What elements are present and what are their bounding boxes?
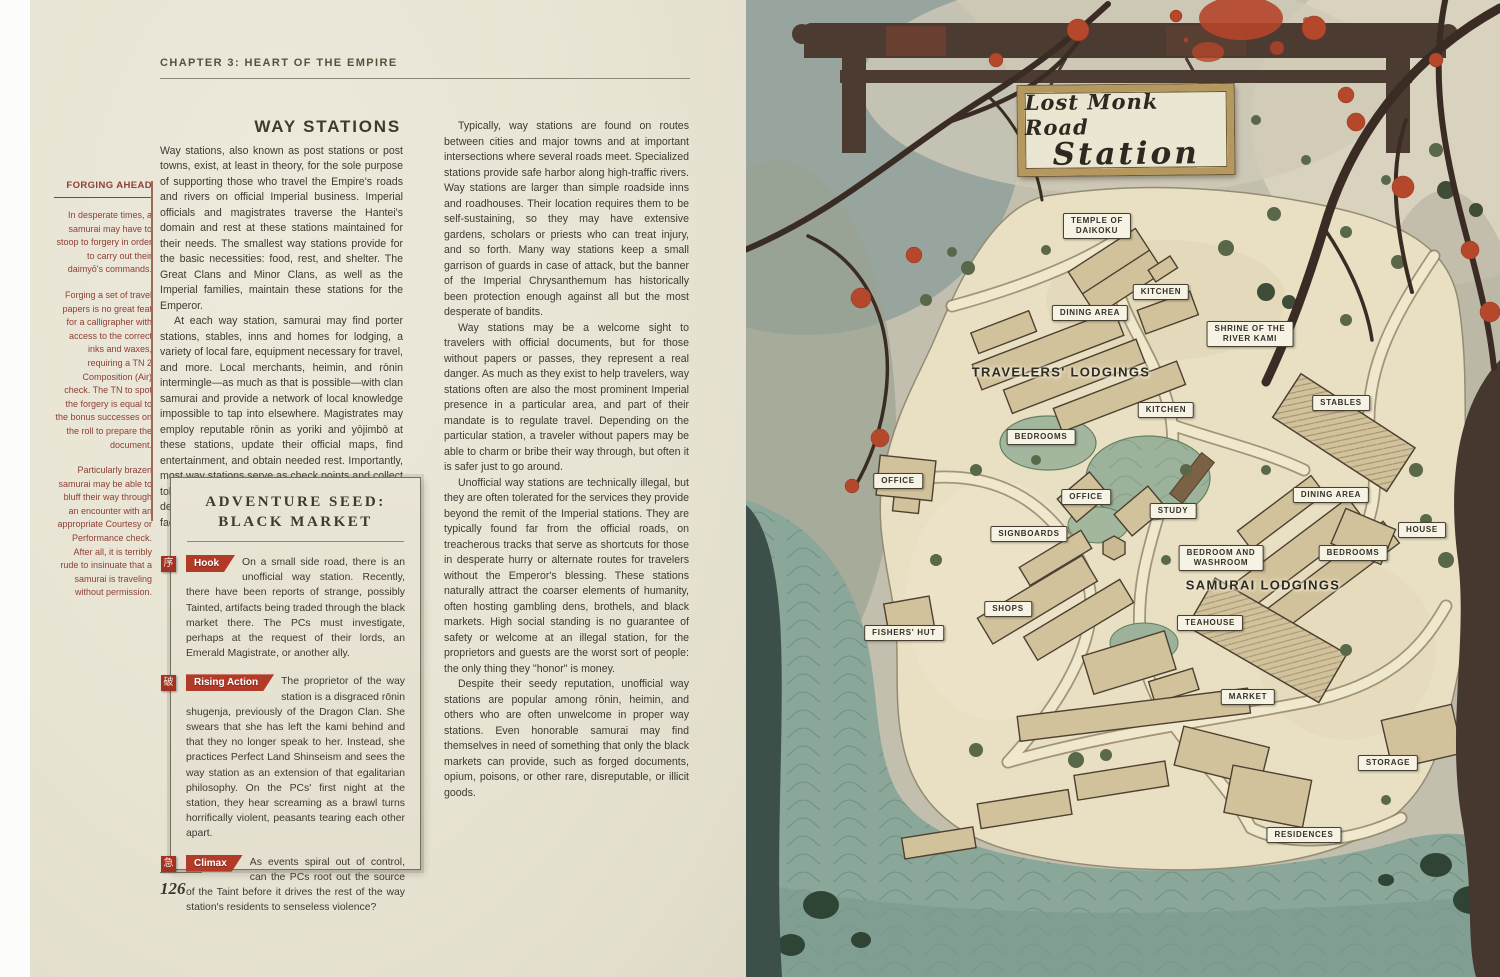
right-page-map: Lost Monk Road Station TEMPLE OF DAIKOKU… [746,0,1500,977]
map-label-dining-area: DINING AREA [1293,487,1369,503]
adventure-seed-title-line2: BLACK MARKET [186,512,405,532]
sidebar-divider-rule [151,181,153,521]
zone-label-samurai-lodgings: SAMURAI LODGINGS [1186,578,1340,593]
seed-entry-climax: 急 Climax As events spiral out of control… [186,855,405,916]
map-label-office: OFFICE [1061,489,1111,505]
page-number-rule [160,872,202,873]
map-label-shops: SHOPS [984,601,1032,617]
hook-text: On a small side road, there is an unoffi… [186,557,405,659]
page-number: 126 [160,879,186,899]
adventure-seed-title-line1: ADVENTURE SEED: [186,492,405,512]
map-label-bedrooms: BEDROOMS [1319,545,1388,561]
body-paragraph: Way stations, also known as post station… [160,144,403,315]
map-label-bedrooms: BEDROOMS [1007,429,1076,445]
map-label-signboards: SIGNBOARDS [990,526,1067,542]
rising-action-ribbon: Rising Action [186,674,274,691]
map-label-house: HOUSE [1398,522,1446,538]
rising-action-text: The proprietor of the way station is a d… [186,676,405,839]
climax-ribbon: Climax [186,855,243,872]
map-label-study: STUDY [1150,503,1197,519]
sidebar-forging-ahead: FORGING AHEAD In desperate times, a samu… [54,180,152,612]
map-label-fishers-hut: FISHERS' HUT [864,625,944,641]
adventure-seed-box: ADVENTURE SEED: BLACK MARKET 序 Hook On a… [170,477,421,870]
left-page: CHAPTER 3: HEART OF THE EMPIRE FORGING A… [30,0,746,977]
body-paragraph: Despite their seedy reputation, unoffici… [444,677,689,801]
sign-title-line1: Lost Monk Road [1025,87,1228,139]
adventure-seed-title: ADVENTURE SEED: BLACK MARKET [186,492,405,532]
sign-title-line2: Station [1052,135,1199,173]
body-paragraph: Unofficial way stations are technically … [444,476,689,678]
map-label-kitchen: KITCHEN [1133,284,1189,300]
map-label-teahouse: TEAHOUSE [1177,615,1243,631]
seed-entry-rising-action: 破 Rising Action The proprietor of the wa… [186,674,405,841]
climax-icon: 急 [161,856,176,872]
map-label-residences: RESIDENCES [1266,827,1341,843]
zone-label-travelers-lodgings: TRAVELERS' LODGINGS [972,365,1151,380]
text-column-1: WAY STATIONS Way stations, also known as… [160,119,403,531]
sidebar-paragraph: Forging a set of travel papers is no gre… [54,289,152,452]
hook-icon: 序 [161,556,176,572]
sidebar-paragraph: Particularly brazen samurai may be able … [54,464,152,600]
chapter-header: CHAPTER 3: HEART OF THE EMPIRE [160,57,690,79]
map-label-shrine-of-the-river-kami: SHRINE OF THE RIVER KAMI [1207,321,1294,347]
map-label-market: MARKET [1221,689,1275,705]
body-paragraph: Way stations may be a welcome sight to t… [444,321,689,476]
map-label-kitchen: KITCHEN [1138,402,1194,418]
map-label-office: OFFICE [873,473,923,489]
adventure-seed-rule [187,541,404,542]
hook-ribbon: Hook [186,555,235,572]
map-label-bedroom-and-washroom: BEDROOM AND WASHROOM [1179,545,1264,571]
sidebar-title: FORGING AHEAD [54,180,152,198]
map-label-temple-of-daikoku: TEMPLE OF DAIKOKU [1063,213,1131,239]
section-heading: WAY STATIONS [160,119,403,135]
body-paragraph: Typically, way stations are found on rou… [444,119,689,321]
text-column-2: Typically, way stations are found on rou… [444,119,689,801]
seed-entry-hook: 序 Hook On a small side road, there is an… [186,555,405,661]
map-label-stables: STABLES [1312,395,1370,411]
book-spread: CHAPTER 3: HEART OF THE EMPIRE FORGING A… [0,0,1500,977]
rising-action-icon: 破 [161,675,176,691]
map-label-dining-area: DINING AREA [1052,305,1128,321]
station-sign: Lost Monk Road Station [1018,84,1235,176]
map-label-storage: STORAGE [1358,755,1418,771]
sidebar-paragraph: In desperate times, a samurai may have t… [54,209,152,277]
